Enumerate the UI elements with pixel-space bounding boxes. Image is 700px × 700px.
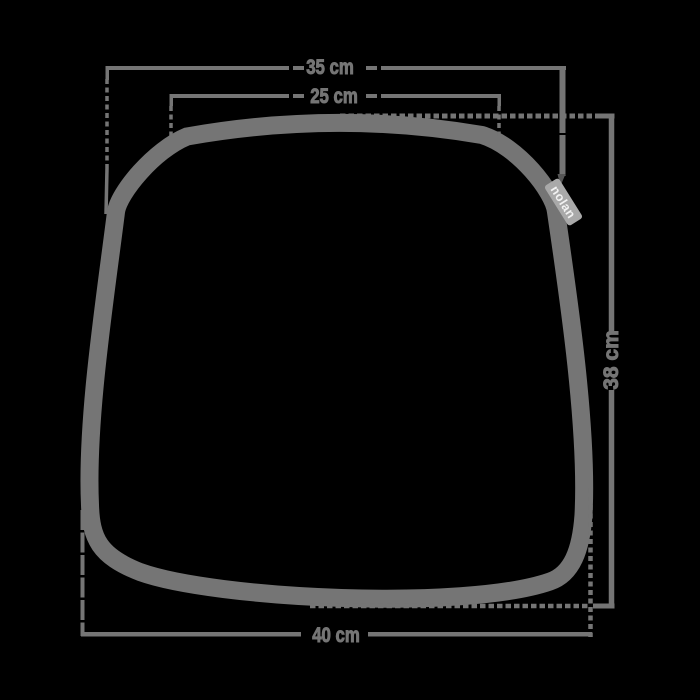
- svg-text:40 cm: 40 cm: [312, 624, 360, 647]
- svg-text:38 cm: 38 cm: [600, 330, 623, 390]
- svg-text:25 cm: 25 cm: [310, 85, 358, 108]
- svg-text:35 cm: 35 cm: [306, 56, 354, 79]
